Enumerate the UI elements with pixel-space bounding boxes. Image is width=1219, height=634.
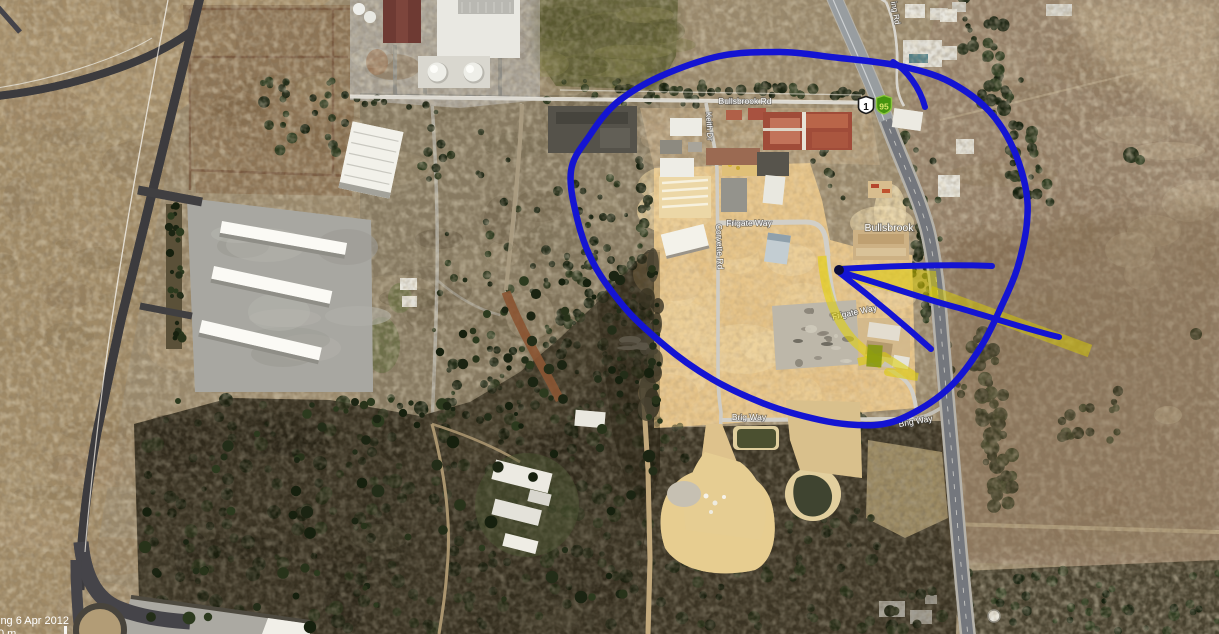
- svg-text:Keith Dr: Keith Dr: [704, 112, 715, 142]
- svg-text:Brig Way: Brig Way: [732, 412, 767, 422]
- svg-text:Corvette Rd: Corvette Rd: [714, 224, 726, 270]
- svg-text:ing 6 Apr 2012: ing 6 Apr 2012: [0, 615, 69, 627]
- svg-text:Bullsbrook: Bullsbrook: [864, 222, 914, 234]
- svg-text:95: 95: [879, 102, 889, 112]
- svg-text:Frigate Way: Frigate Way: [726, 218, 772, 228]
- svg-text:Bullsbrook Rd: Bullsbrook Rd: [719, 96, 772, 106]
- svg-text:1: 1: [863, 102, 869, 113]
- svg-text:0 m: 0 m: [0, 628, 16, 634]
